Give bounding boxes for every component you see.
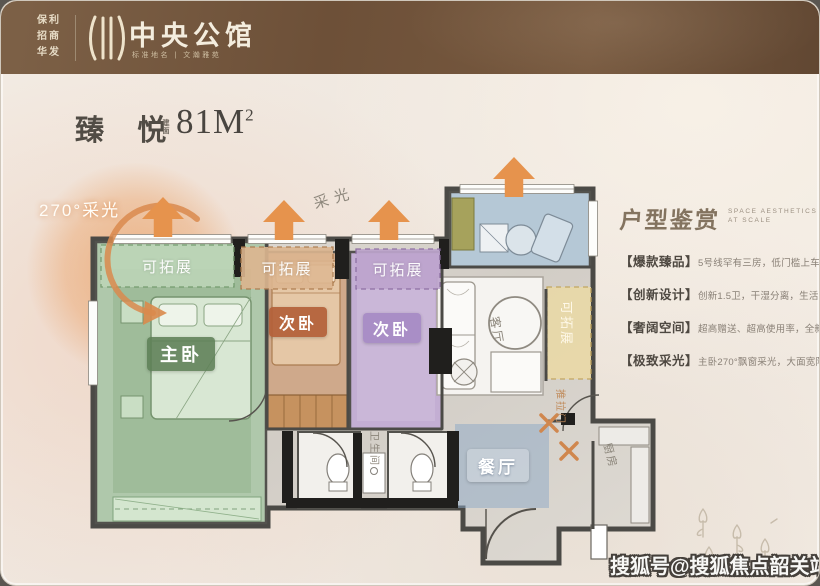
label-expandable-bedroom2: 可拓展 [241,258,333,279]
label-dining: 餐厅 [467,449,529,482]
label-expandable-master: 可拓展 [101,256,234,277]
label-bathroom: 卫生间 [368,431,383,467]
fan-coil-icon [451,359,477,385]
label-expandable-strip: 可拓展 [558,301,577,346]
label-sliding-door: 推拉门 [554,389,569,425]
label-expandable-bedroom3: 可拓展 [356,259,440,280]
label-master-bedroom: 主卧 [147,337,215,371]
selling-points: 【爆款臻品】5号线罕有三房，低门槛上车中心区 【创新设计】创新1.5卫，干湿分离… [620,251,820,370]
selling-point: 【极致采光】主卧270°飘窗采光，大面宽阳光相伴 [620,350,820,370]
label-270-lighting: 270°采光 [39,196,120,221]
watermark: 搜狐号@搜狐焦点韶关站 [610,550,820,579]
selling-point: 【爆款臻品】5号线罕有三房，低门槛上车中心区 [620,251,820,271]
label-bedroom2: 次卧 [269,307,327,337]
cabinet-icon [452,198,474,250]
selling-point: 【创新设计】创新1.5卫，干湿分离，生活从容有度 [620,284,820,304]
selling-point: 【奢阔空间】超高赠送、超高使用率，全新迭代产品 [620,317,820,337]
toilet-icon-2 [411,454,433,491]
label-bedroom3: 次卧 [363,313,421,343]
promo-image: 保利 招商 华发 中央公馆 标准地名 | 文瀚雅苑 臻 悦 建 面 81M2 [0,0,820,586]
panel-title-en: SPACE AESTHETICS AT SCALE [728,207,817,225]
tv-cabinet-icon [491,352,541,392]
info-panel: 户型鉴赏 SPACE AESTHETICS AT SCALE 【爆款臻品】5号线… [620,201,820,370]
wardrobe-icon [268,395,347,428]
card-background: 保利 招商 华发 中央公馆 标准地名 | 文瀚雅苑 臻 悦 建 面 81M2 [0,0,820,586]
panel-title: 户型鉴赏 [619,201,721,235]
